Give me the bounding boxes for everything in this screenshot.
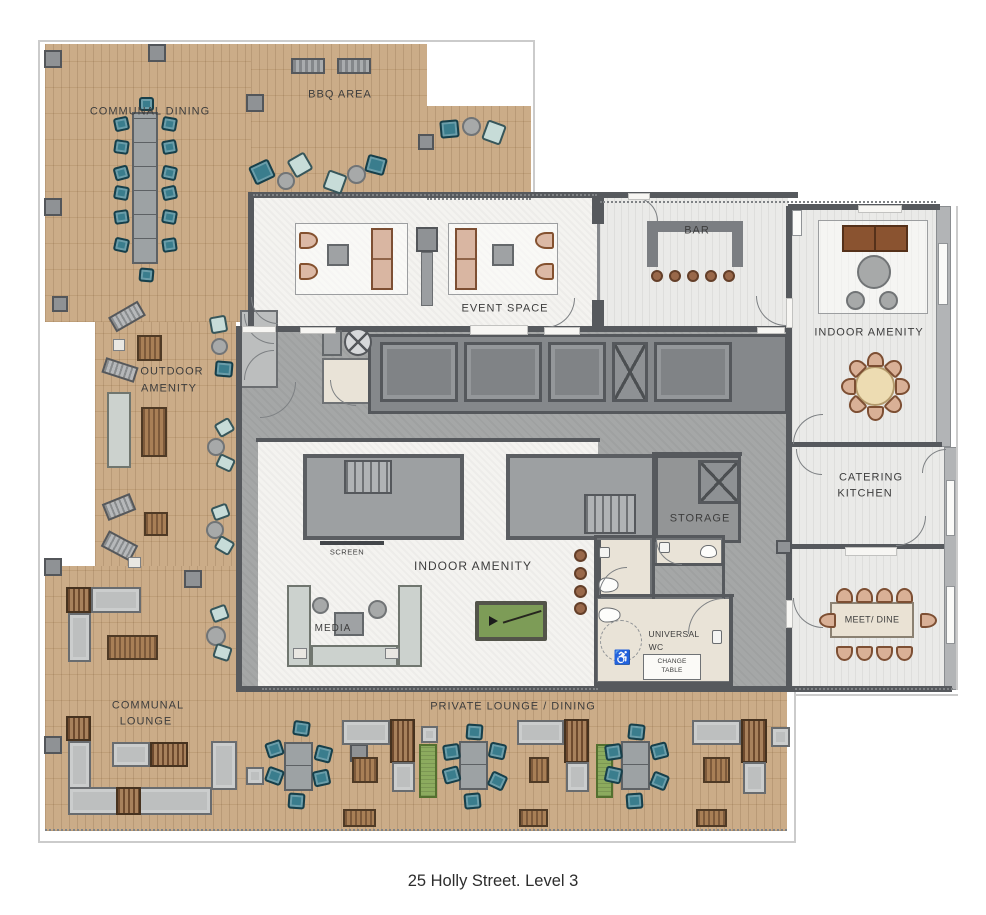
chP — [836, 588, 853, 603]
chT — [604, 743, 623, 761]
media-screen — [320, 541, 384, 545]
column — [44, 558, 62, 576]
chT — [625, 792, 643, 809]
wslot — [300, 327, 336, 334]
wall — [592, 300, 604, 330]
stair — [344, 460, 392, 494]
window — [792, 210, 802, 236]
label-private-lounge-dining: PRIVATE LOUNGE / DINING — [430, 702, 596, 713]
wslot — [544, 327, 580, 335]
extract-fan — [344, 328, 372, 356]
stripedC — [66, 716, 91, 741]
label-bbq-area: BBQ AREA — [308, 90, 372, 101]
label-universal: UNIVERSAL — [649, 630, 700, 639]
cirG — [846, 291, 865, 310]
bline — [38, 40, 535, 42]
stripedC — [564, 719, 589, 763]
column — [148, 44, 166, 62]
chL — [209, 315, 229, 335]
tableseg — [284, 742, 313, 791]
riser-shaft — [612, 342, 648, 402]
elevator — [548, 342, 606, 402]
wslot — [242, 326, 276, 333]
plan-caption: 25 Holly Street. Level 3 — [0, 872, 986, 891]
tickline — [253, 194, 597, 196]
bline — [794, 694, 958, 696]
wall — [729, 594, 733, 686]
label-indoor-amenity: INDOOR AMENITY — [414, 560, 532, 572]
chP — [841, 378, 856, 395]
sofaG — [91, 587, 141, 613]
chT — [214, 360, 233, 378]
planter — [144, 512, 168, 536]
sofaG — [692, 720, 741, 745]
sofaBr — [842, 225, 908, 252]
planter — [137, 335, 162, 361]
bline — [794, 690, 796, 843]
bbq-bench — [337, 58, 371, 74]
wall — [652, 452, 742, 456]
communal-dining-table — [132, 112, 158, 264]
planter — [529, 757, 549, 783]
wall — [594, 682, 733, 686]
box2 — [492, 244, 514, 266]
floor-plan: 25 Holly Street. Level 3 COMMUNAL DINING… — [0, 0, 986, 915]
chT — [113, 139, 130, 155]
wslot — [845, 547, 897, 556]
wall — [236, 326, 242, 692]
chT — [161, 116, 178, 132]
wslot — [628, 193, 650, 200]
chT — [439, 119, 459, 139]
elevator — [380, 342, 458, 402]
bline — [38, 40, 40, 843]
column — [776, 540, 792, 554]
chT — [287, 792, 305, 809]
tableseg — [621, 741, 650, 790]
stair — [584, 494, 636, 534]
box — [385, 648, 399, 659]
wall — [594, 594, 597, 686]
chP — [896, 588, 913, 603]
label-media: MEDIA — [315, 624, 352, 634]
wall — [594, 535, 725, 538]
chT — [488, 741, 508, 760]
sink — [599, 547, 610, 558]
cirG — [277, 172, 295, 190]
box — [113, 339, 125, 351]
label-event-space: EVENT SPACE — [461, 304, 548, 315]
chT — [161, 209, 178, 225]
sofaG — [421, 726, 438, 743]
wall — [722, 535, 725, 599]
pool-table — [475, 601, 547, 641]
planter — [696, 809, 727, 827]
stripedC — [116, 787, 141, 815]
cirB — [574, 602, 587, 615]
cirG — [347, 165, 366, 184]
bar-stool — [705, 270, 717, 282]
tickline — [262, 688, 598, 690]
label-catering: CATERING — [839, 473, 903, 484]
box — [128, 557, 141, 568]
stripedC — [390, 719, 415, 763]
wall — [256, 438, 600, 442]
column — [416, 227, 438, 252]
sofaG — [566, 762, 589, 792]
sofaG — [112, 742, 150, 767]
sofaL — [107, 392, 131, 468]
sofaG — [68, 613, 91, 662]
box2 — [327, 244, 349, 266]
wall — [248, 192, 254, 332]
wslot — [858, 205, 902, 213]
box — [293, 648, 307, 659]
bline — [38, 841, 796, 843]
chT — [442, 743, 461, 761]
wslot — [757, 327, 785, 334]
label-change: CHANGE — [657, 659, 686, 666]
chT — [463, 792, 481, 809]
tickline — [427, 198, 531, 200]
cirB — [574, 567, 587, 580]
stripedC — [66, 587, 91, 613]
wall — [655, 563, 725, 566]
column — [44, 50, 62, 68]
label-lounge: LOUNGE — [120, 717, 172, 728]
toilet — [700, 545, 717, 558]
cirG — [211, 338, 228, 355]
chT — [161, 139, 178, 155]
chT — [604, 765, 624, 784]
tickline — [795, 688, 953, 690]
column — [184, 570, 202, 588]
wslot — [786, 600, 793, 628]
chT — [627, 723, 646, 741]
column — [246, 94, 264, 112]
planter — [141, 407, 167, 457]
media-sofa — [398, 585, 422, 667]
planter — [519, 809, 548, 827]
planter — [343, 809, 376, 827]
label-storage: STORAGE — [670, 514, 731, 525]
label-table: TABLE — [661, 668, 682, 675]
tub — [535, 232, 554, 249]
sofaPk — [455, 228, 477, 290]
chT — [113, 237, 131, 254]
tableseg — [459, 741, 488, 790]
label-bar: BAR — [684, 226, 710, 237]
label-wc: WC — [649, 643, 664, 652]
sofaG — [246, 767, 264, 785]
label-indoor-amenity: INDOOR AMENITY — [814, 328, 923, 339]
elevator — [654, 342, 732, 402]
column — [44, 198, 62, 216]
wall — [652, 535, 655, 599]
label-kitchen: KITCHEN — [837, 489, 892, 500]
label-meet-dine: MEET/ DINE — [845, 616, 900, 625]
bar-stool — [669, 270, 681, 282]
cirB — [574, 549, 587, 562]
column — [44, 736, 62, 754]
stripedC — [150, 742, 188, 767]
planter — [107, 635, 158, 660]
chT — [161, 237, 178, 253]
cirG — [879, 291, 898, 310]
window — [946, 586, 955, 644]
storage-shaft — [698, 460, 740, 504]
label-outdoor: OUTDOOR — [140, 367, 203, 378]
cirG — [857, 255, 891, 289]
wall — [652, 452, 656, 542]
column — [418, 134, 434, 150]
planter — [703, 757, 730, 783]
wslot — [470, 325, 528, 335]
chT — [161, 165, 179, 182]
label-icon: ♿ — [614, 650, 632, 664]
bline — [533, 40, 535, 198]
colThin — [421, 252, 433, 306]
cirB — [574, 585, 587, 598]
bar-stool — [687, 270, 699, 282]
label-communal: COMMUNAL — [112, 701, 184, 712]
column — [52, 296, 68, 312]
tickline — [45, 829, 787, 831]
cirG — [368, 600, 387, 619]
cirG — [462, 117, 481, 136]
chP — [876, 588, 893, 603]
label-screen: SCREEN — [330, 548, 364, 556]
window — [938, 243, 948, 305]
chT — [465, 723, 483, 740]
planter — [352, 757, 378, 783]
sofaG — [771, 727, 790, 747]
green — [419, 744, 437, 798]
sofaG — [392, 762, 415, 792]
bar-stool — [651, 270, 663, 282]
chP — [856, 588, 873, 603]
sofaG — [68, 741, 91, 789]
bar-stool — [723, 270, 735, 282]
bline — [956, 206, 958, 690]
bbq-bench — [291, 58, 325, 74]
sofaG — [211, 741, 237, 790]
label-communal-dining: COMMUNAL DINING — [90, 107, 210, 118]
tub — [535, 263, 554, 280]
chT — [138, 267, 154, 282]
chT — [113, 209, 130, 225]
sofaG — [517, 720, 564, 745]
label-amenity: AMENITY — [141, 384, 197, 395]
elevator — [464, 342, 542, 402]
chT — [292, 720, 311, 737]
window — [946, 480, 955, 536]
sofaPk — [371, 228, 393, 290]
stripedC — [741, 719, 767, 763]
sofaG — [342, 720, 390, 745]
chT — [113, 185, 130, 201]
wslot — [786, 298, 793, 328]
sofaG — [743, 762, 766, 794]
cirG — [312, 597, 329, 614]
chP — [867, 352, 884, 367]
